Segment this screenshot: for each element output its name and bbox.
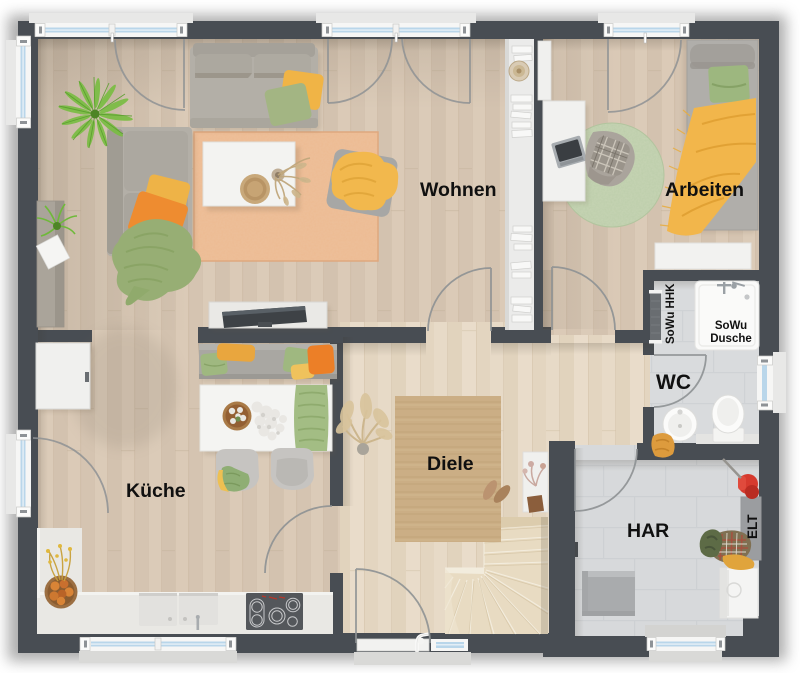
svg-text:SoWu: SoWu [715, 320, 747, 332]
svg-text:Diele: Diele [427, 453, 474, 475]
svg-text:Dusche: Dusche [710, 333, 752, 345]
svg-text:Küche: Küche [126, 480, 186, 502]
svg-text:ELT: ELT [745, 514, 760, 539]
svg-text:WC: WC [656, 371, 691, 394]
svg-text:Wohnen: Wohnen [420, 179, 497, 201]
svg-text:SoWu HHK: SoWu HHK [665, 283, 677, 344]
svg-text:Arbeiten: Arbeiten [665, 179, 744, 201]
svg-text:HAR: HAR [627, 520, 669, 542]
